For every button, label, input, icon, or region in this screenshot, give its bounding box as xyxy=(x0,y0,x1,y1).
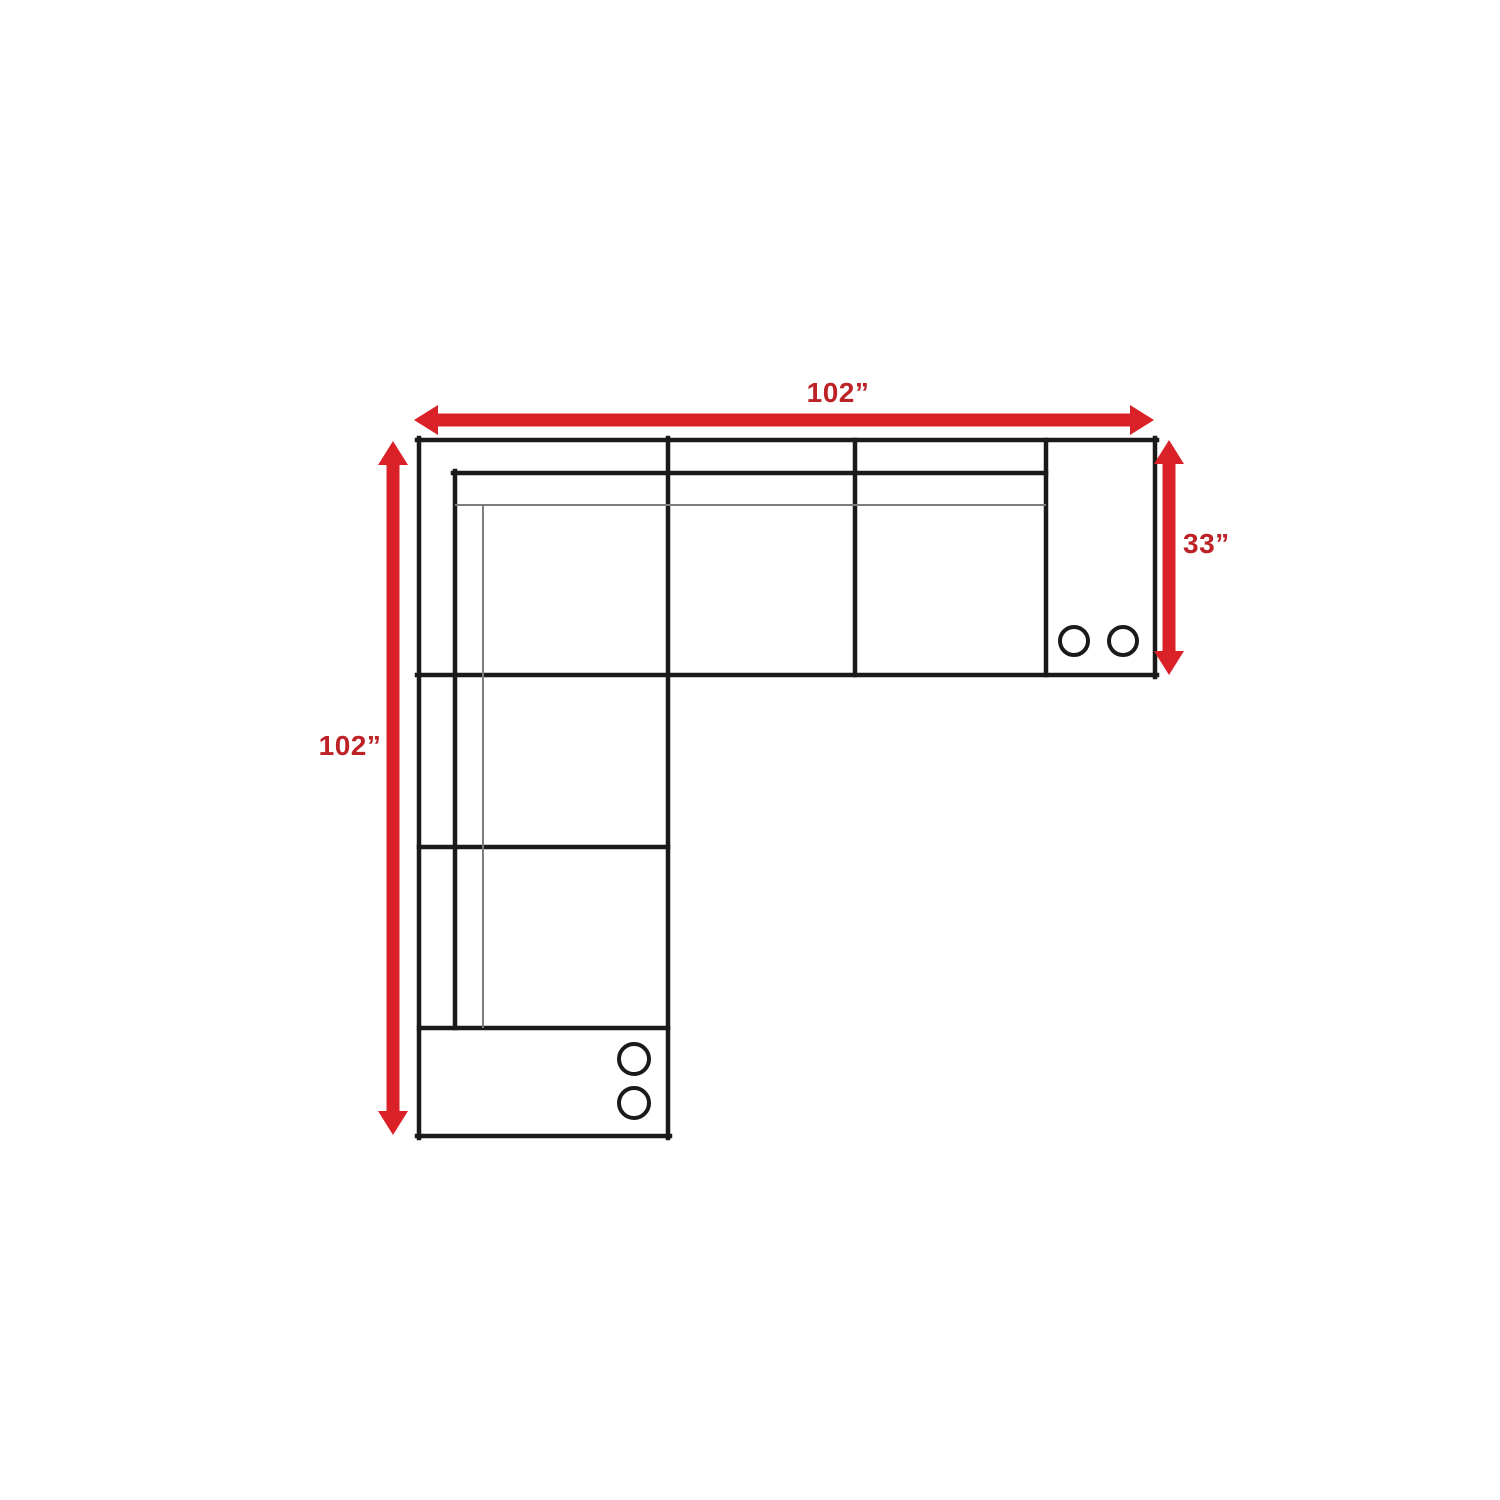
bottom-console-cup-holders xyxy=(619,1044,649,1118)
left-height-label: 102” xyxy=(319,730,382,761)
diagram-canvas: 102” 102” 33” xyxy=(0,0,1500,1500)
dimension-arrows xyxy=(378,405,1184,1135)
right-depth-arrow-icon xyxy=(1154,440,1184,675)
top-width-arrow-icon xyxy=(414,405,1154,435)
section-dividers xyxy=(419,440,1046,1028)
top-width-label: 102” xyxy=(807,377,870,408)
backrest-lines xyxy=(453,471,1046,1028)
right-console-cup-holders xyxy=(1060,627,1137,655)
left-height-arrow-icon xyxy=(378,441,408,1135)
right-depth-label: 33” xyxy=(1183,528,1230,559)
cup-holder-icon xyxy=(1060,627,1088,655)
sectional-sofa-dimension-diagram: 102” 102” 33” xyxy=(0,0,1500,1500)
cup-holder-icon xyxy=(619,1044,649,1074)
cup-holder-icon xyxy=(1109,627,1137,655)
cup-holder-icon xyxy=(619,1088,649,1118)
